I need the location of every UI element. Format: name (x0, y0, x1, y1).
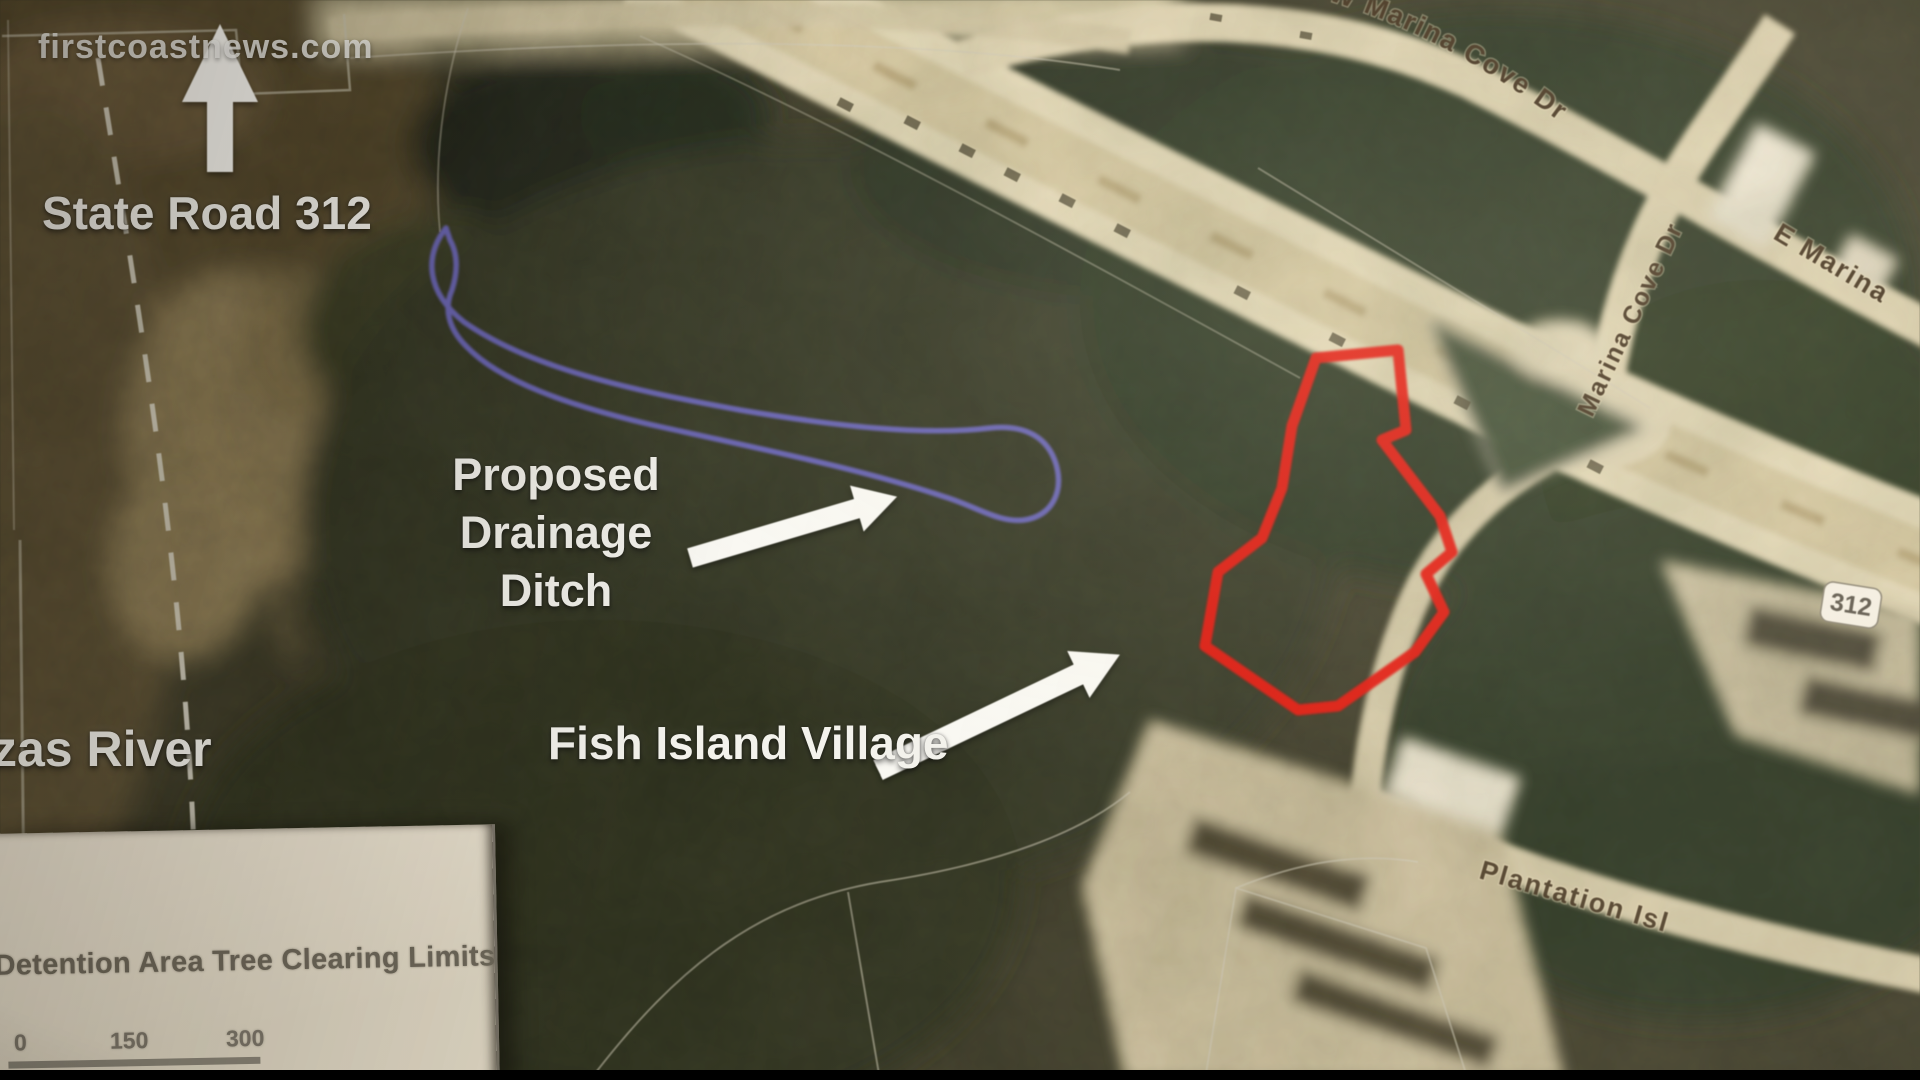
station-watermark: firstcoastnews.com (38, 28, 373, 67)
legend-title: Detention Area Tree Clearing Limits (0, 940, 496, 983)
scale-tick-0: 0 (14, 1029, 27, 1056)
ditch-label-line1: Proposed (360, 446, 752, 504)
ditch-label-line2: Drainage (360, 504, 752, 562)
ditch-label-line3: Ditch (360, 562, 752, 620)
fish-island-village-label: Fish Island Village (548, 716, 949, 770)
scale-tick-150: 150 (110, 1027, 149, 1055)
proposed-drainage-ditch-label: Proposed Drainage Ditch (360, 446, 752, 620)
news-map-screenshot: 312 W Marina Cove Dr E Marina Marina Cov… (0, 0, 1920, 1080)
letterbox-bar (0, 1070, 1920, 1080)
river-label: zas River (0, 720, 212, 778)
scale-tick-300: 300 (226, 1025, 265, 1053)
state-road-312-label: State Road 312 (42, 186, 372, 240)
map-legend: Detention Area Tree Clearing Limits 0 15… (0, 824, 500, 1080)
route-shield-312: 312 (1819, 581, 1883, 630)
scale-bar (8, 1057, 260, 1069)
